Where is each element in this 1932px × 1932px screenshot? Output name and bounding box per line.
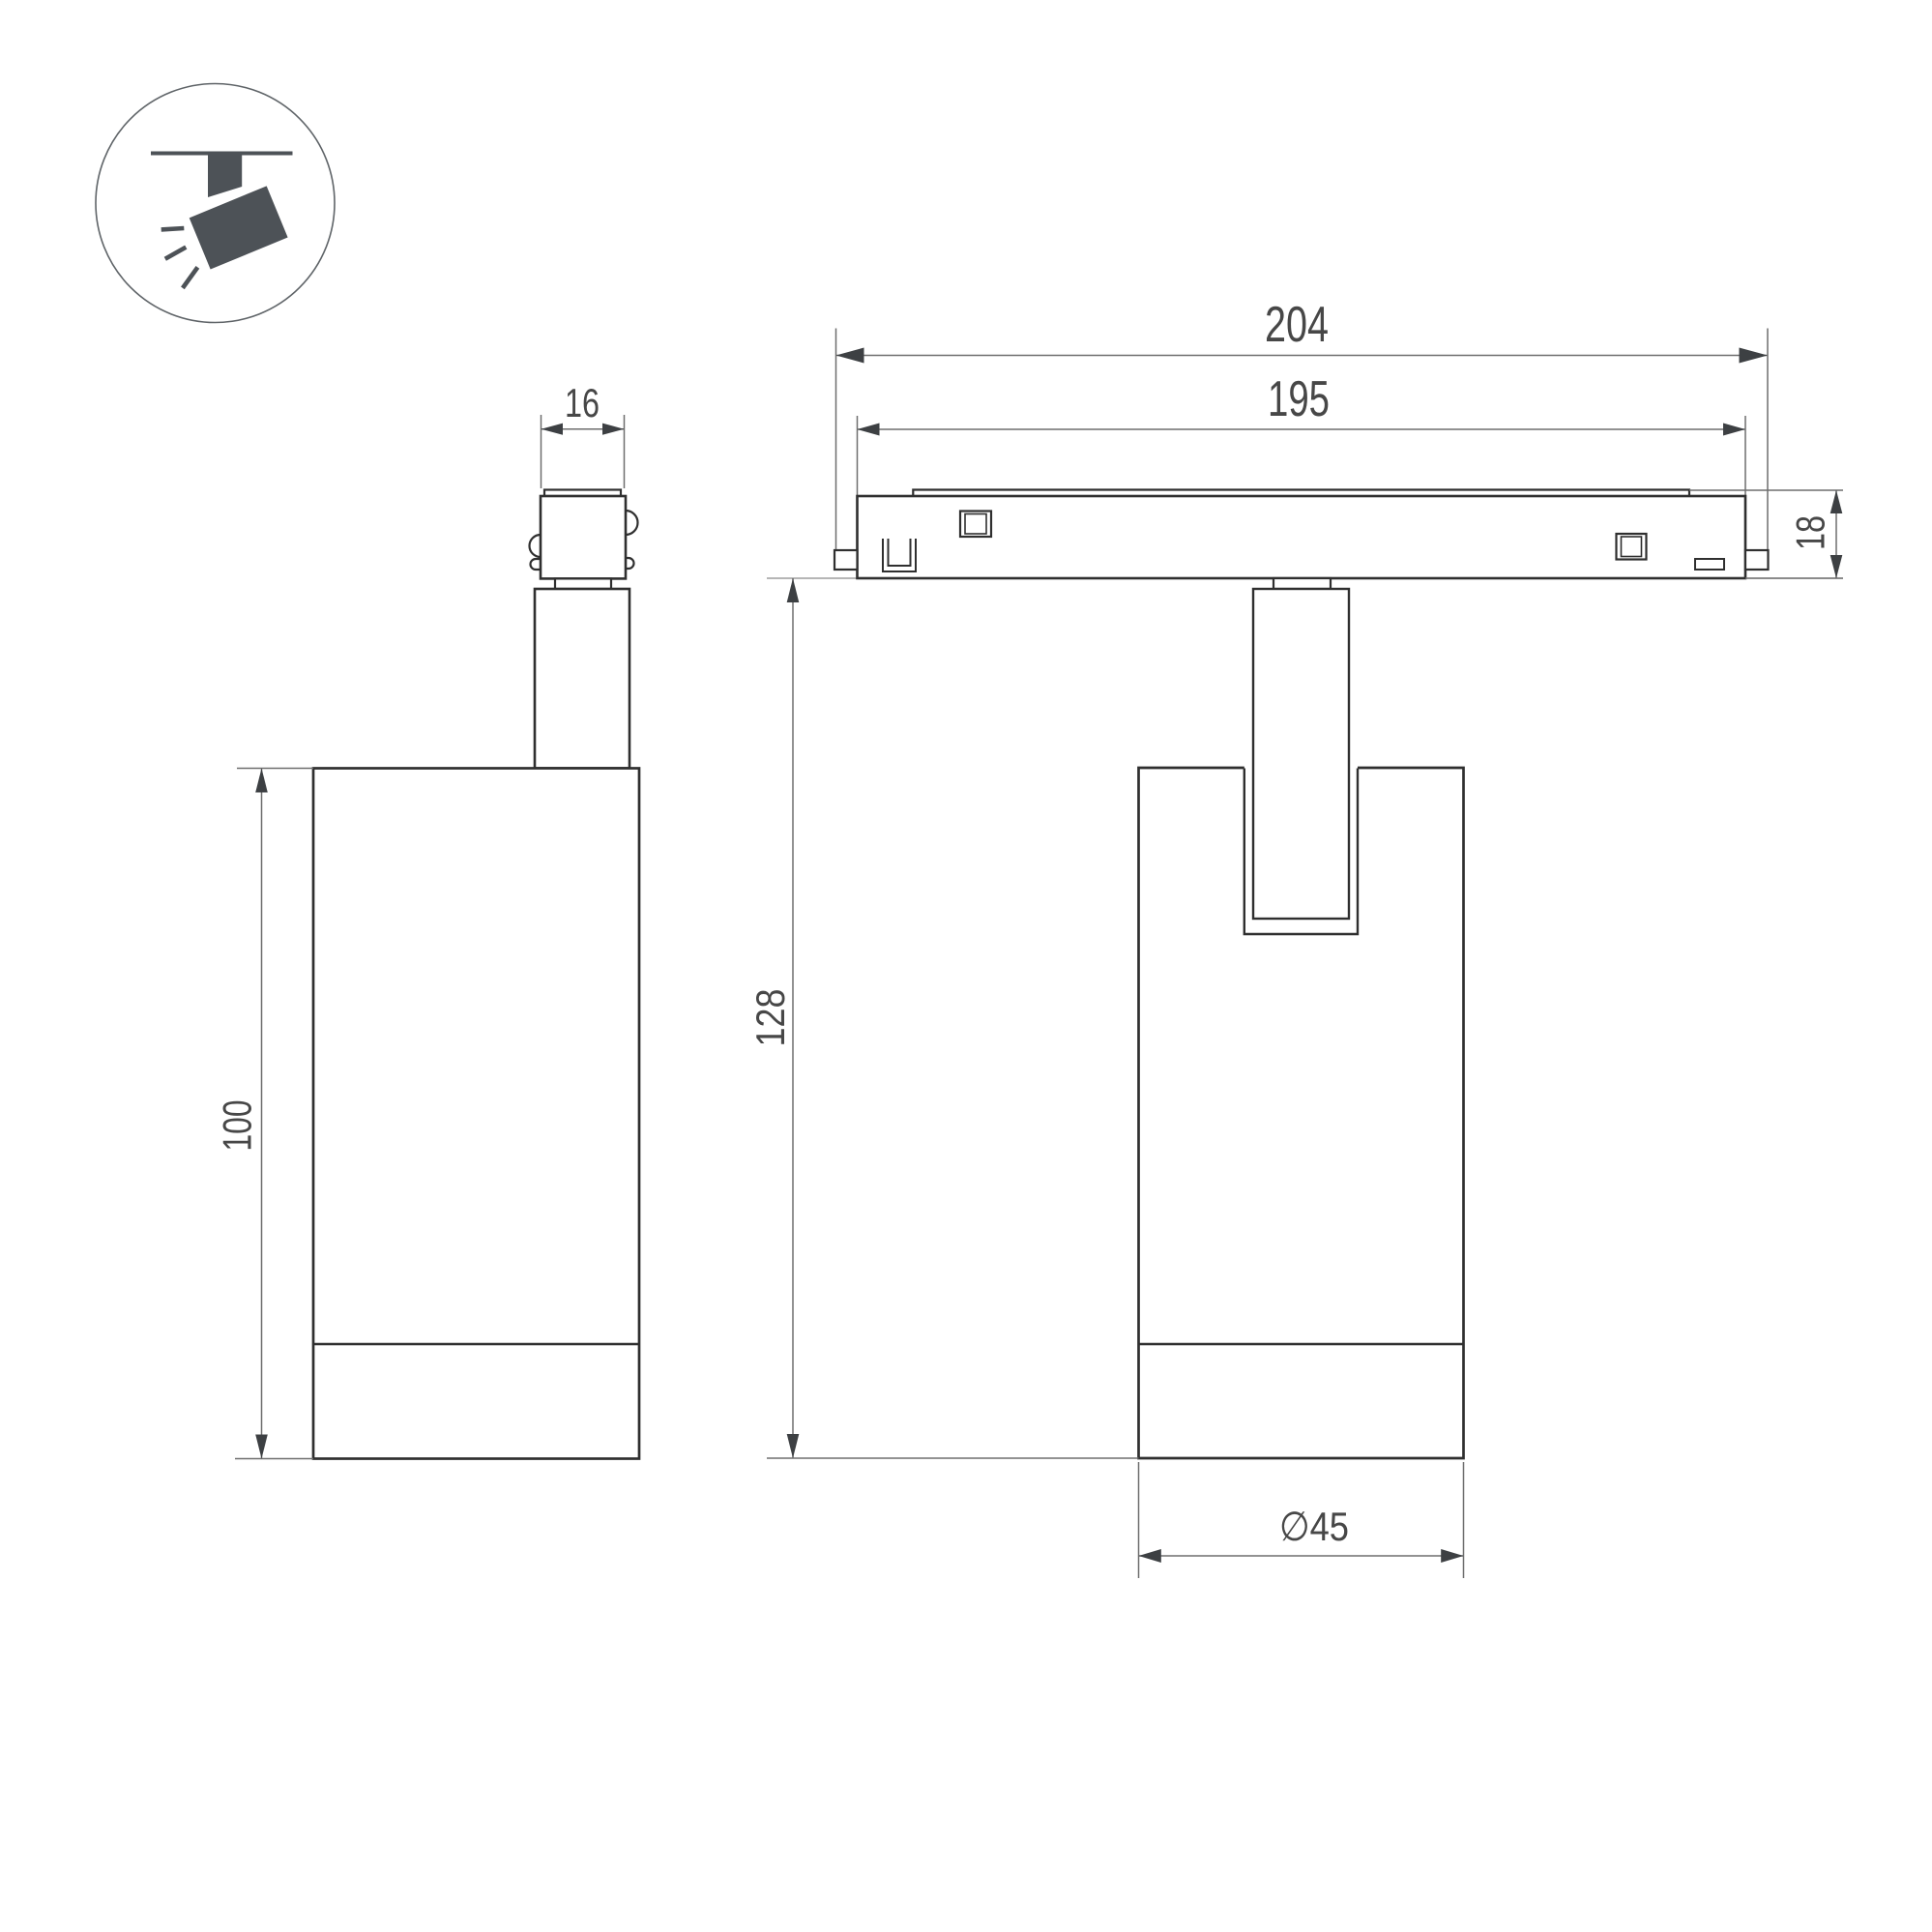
svg-text:204: 204 [1265, 297, 1329, 353]
svg-text:∅45: ∅45 [1279, 1504, 1349, 1549]
svg-text:128: 128 [747, 989, 793, 1047]
svg-text:195: 195 [1268, 371, 1330, 427]
svg-text:100: 100 [215, 1100, 260, 1152]
svg-text:18: 18 [1788, 515, 1833, 550]
svg-text:16: 16 [565, 380, 600, 425]
